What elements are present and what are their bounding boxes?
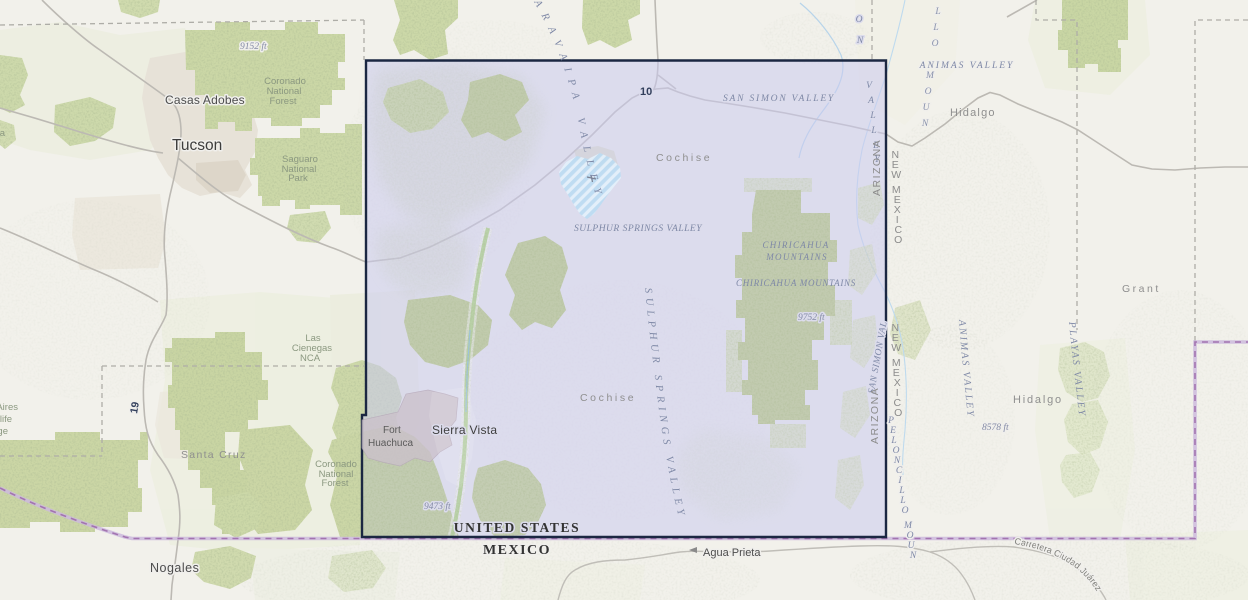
svg-text:N: N <box>921 119 929 129</box>
svg-text:P: P <box>887 416 894 426</box>
svg-text:Casas Adobes: Casas Adobes <box>165 93 245 107</box>
svg-text:L: L <box>869 111 875 121</box>
svg-text:O: O <box>894 407 904 419</box>
svg-text:8578 ft: 8578 ft <box>982 422 1009 433</box>
svg-text:L: L <box>870 126 876 136</box>
svg-text:Forest: Forest <box>270 96 297 107</box>
svg-text:N: N <box>893 456 901 466</box>
svg-text:9152 ft: 9152 ft <box>240 41 267 52</box>
svg-text:O: O <box>856 15 863 25</box>
svg-text:L: L <box>898 486 904 496</box>
svg-text:Aires: Aires <box>0 402 18 413</box>
svg-text:CHIRICAHUA MOUNTAINS: CHIRICAHUA MOUNTAINS <box>736 278 856 288</box>
svg-text:Nogales: Nogales <box>150 561 199 575</box>
svg-text:NCA: NCA <box>300 353 321 364</box>
svg-text:SULPHUR SPRINGS VALLEY: SULPHUR SPRINGS VALLEY <box>574 224 703 234</box>
svg-text:C: C <box>896 466 903 476</box>
svg-text:O: O <box>907 531 914 541</box>
svg-text:19: 19 <box>128 401 142 415</box>
svg-text:UNITED STATES: UNITED STATES <box>454 520 580 535</box>
svg-text:Sierra Vista: Sierra Vista <box>432 423 497 437</box>
svg-text:Hidalgo: Hidalgo <box>950 107 996 119</box>
svg-text:a: a <box>0 128 6 139</box>
svg-text:O: O <box>932 39 939 49</box>
svg-text:U: U <box>923 103 931 113</box>
svg-text:L: L <box>899 496 905 506</box>
svg-text:ANIMAS VALLEY: ANIMAS VALLEY <box>919 61 1015 71</box>
svg-text:A: A <box>867 96 874 106</box>
svg-text:Cochise: Cochise <box>580 392 636 404</box>
svg-text:MOUNTAINS: MOUNTAINS <box>765 252 828 262</box>
svg-text:ge: ge <box>0 426 8 437</box>
svg-text:W: W <box>891 169 902 181</box>
svg-text:O: O <box>925 87 932 97</box>
svg-text:L: L <box>890 436 896 446</box>
svg-text:O: O <box>902 506 909 516</box>
svg-text:M: M <box>925 71 935 81</box>
svg-text:Cochise: Cochise <box>656 152 712 164</box>
svg-text:W: W <box>891 342 902 354</box>
svg-text:N: N <box>909 551 917 561</box>
svg-text:MEXICO: MEXICO <box>483 543 551 558</box>
svg-text:L: L <box>934 7 940 17</box>
svg-text:M: M <box>903 521 913 531</box>
svg-text:9473 ft: 9473 ft <box>424 501 451 512</box>
svg-text:Grant: Grant <box>1122 283 1161 295</box>
svg-text:ARIZONA: ARIZONA <box>871 139 883 196</box>
svg-text:Agua Prieta: Agua Prieta <box>703 547 761 559</box>
svg-text:Fort: Fort <box>383 425 401 436</box>
svg-text:CHIRICAHUA: CHIRICAHUA <box>763 240 830 250</box>
svg-text:L: L <box>932 23 938 33</box>
svg-text:Huachuca: Huachuca <box>368 438 413 449</box>
svg-text:ARIZONA: ARIZONA <box>869 387 881 444</box>
svg-text:Hidalgo: Hidalgo <box>1013 394 1063 406</box>
svg-text:Tucson: Tucson <box>172 137 222 154</box>
svg-text:O: O <box>893 446 900 456</box>
svg-text:9752 ft: 9752 ft <box>798 312 825 323</box>
svg-text:Forest: Forest <box>322 478 349 489</box>
svg-text:10: 10 <box>640 86 652 98</box>
svg-text:N: N <box>856 36 864 46</box>
svg-text:E: E <box>889 426 896 436</box>
svg-text:Park: Park <box>288 173 308 184</box>
svg-text:SAN SIMON VALLEY: SAN SIMON VALLEY <box>723 94 835 104</box>
svg-text:Santa Cruz: Santa Cruz <box>181 449 247 461</box>
svg-text:U: U <box>908 541 916 551</box>
svg-text:ldlife: ldlife <box>0 414 12 425</box>
svg-text:O: O <box>894 234 904 246</box>
